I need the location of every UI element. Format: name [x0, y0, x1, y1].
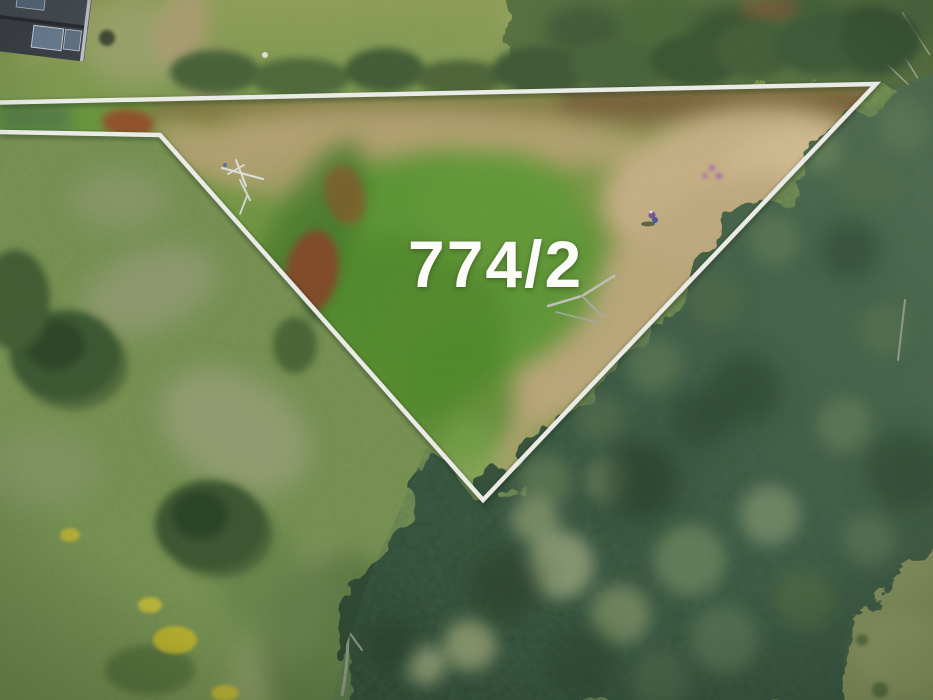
parcel-number-label: 774/2 [408, 231, 583, 297]
aerial-photo: 774/2 [0, 0, 933, 700]
aerial-photo-scene [0, 0, 933, 700]
grain-overlay [0, 0, 933, 700]
